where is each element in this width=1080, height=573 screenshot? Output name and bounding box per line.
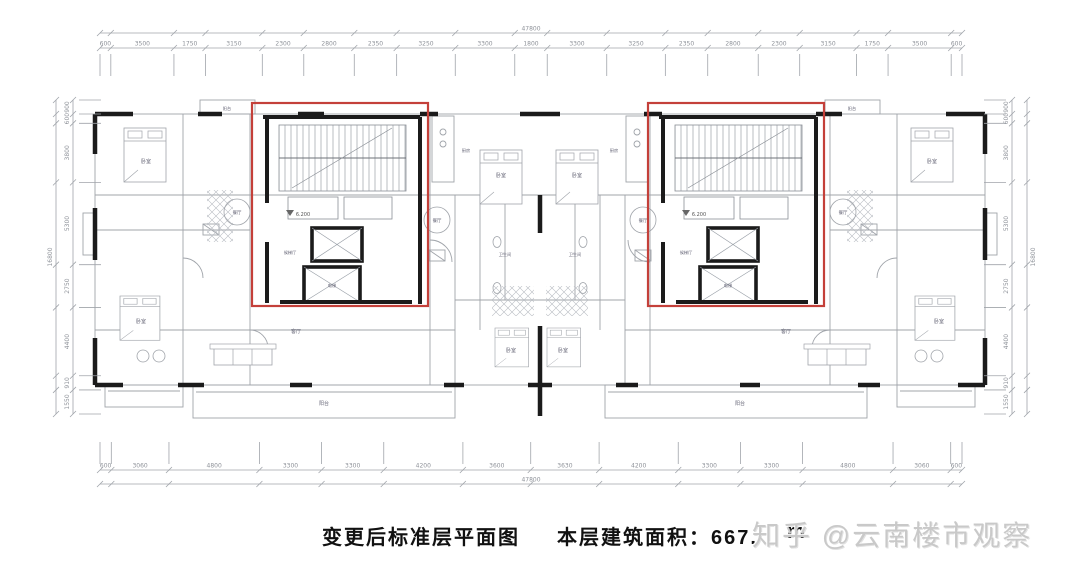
dim-label: 910	[1003, 377, 1010, 389]
dim-label: 3300	[569, 41, 584, 48]
room-label-bedroom: 卧室	[927, 158, 937, 165]
room-label-balcony: 阳台	[848, 105, 856, 112]
dimension-chain-right: 9006003800530027504400910155016800	[984, 97, 1037, 417]
dim-label: 600	[951, 463, 963, 470]
dimension-chain-top: 6003500175031502300280023503250330018003…	[97, 26, 965, 77]
dim-label: 3630	[557, 463, 572, 470]
dim-label: 2750	[1003, 278, 1010, 293]
room-label-bedroom: 卧室	[506, 347, 516, 354]
dim-label: 600	[1003, 113, 1010, 125]
room-label-dining: 餐厅	[433, 217, 442, 224]
dim-label: 3500	[135, 41, 150, 48]
room-label-dining: 餐厅	[839, 209, 848, 216]
dim-label: 900	[64, 101, 71, 113]
dim-label: 1550	[64, 394, 71, 409]
dim-label: 2750	[64, 278, 71, 293]
dim-label: 3300	[345, 463, 360, 470]
room-label-living: 客厅	[781, 328, 791, 335]
dim-label: 3060	[914, 463, 929, 470]
dim-label: 1750	[865, 41, 880, 48]
toilet-icon	[493, 237, 501, 248]
dim-label: 2800	[321, 41, 336, 48]
room-label-kitchen: 厨房	[462, 147, 470, 154]
toilet-icon	[579, 237, 587, 248]
dim-label: 4400	[1003, 334, 1010, 349]
dim-label: 4200	[631, 463, 646, 470]
dim-label: 3600	[489, 463, 504, 470]
dim-label: 2300	[771, 41, 786, 48]
room-label-bath: 卫生间	[569, 251, 582, 258]
dim-label: 2800	[725, 41, 740, 48]
dim-label: 4200	[416, 463, 431, 470]
room-label-bedroom: 卧室	[934, 318, 944, 325]
room-label-dining: 餐厅	[639, 217, 648, 224]
dim-label: 3150	[820, 41, 835, 48]
dim-label: 3500	[912, 41, 927, 48]
room-label-balcony: 阳台	[735, 400, 745, 407]
dim-label: 1750	[182, 41, 197, 48]
dim-label: 600	[64, 113, 71, 125]
dim-total-label: 16800	[1030, 247, 1037, 266]
room-label-bedroom: 卧室	[496, 172, 506, 179]
dim-label: 600	[100, 463, 112, 470]
dim-total-label: 16800	[47, 247, 54, 266]
dim-label: 910	[64, 377, 71, 389]
watermark: 知乎 @云南楼市观察	[752, 514, 1032, 554]
dim-label: 5300	[1003, 216, 1010, 231]
room-label-living: 客厅	[291, 328, 301, 335]
dim-label: 600	[951, 41, 963, 48]
room-label-kitchen: 厨房	[610, 147, 618, 154]
dim-label: 1550	[1003, 394, 1010, 409]
sink-icon	[137, 350, 149, 362]
dim-label: 3300	[702, 463, 717, 470]
dim-label: 3250	[628, 41, 643, 48]
dim-label: 600	[100, 41, 112, 48]
sink-icon	[915, 350, 927, 362]
dim-label: 4800	[207, 463, 222, 470]
dim-label: 3250	[418, 41, 433, 48]
room-label-balcony: 阳台	[319, 400, 329, 407]
dim-total-label: 47800	[521, 26, 540, 33]
dim-label: 3300	[283, 463, 298, 470]
dim-label: 3060	[132, 463, 147, 470]
dim-label: 4800	[840, 463, 855, 470]
dim-label: 1800	[523, 41, 538, 48]
room-label-dining: 餐厅	[233, 209, 242, 216]
sink-icon	[931, 350, 943, 362]
dimension-chain-bottom: 6003060480033003300420036003630420033003…	[97, 442, 965, 487]
dim-label: 2350	[368, 41, 383, 48]
dim-label: 5300	[64, 216, 71, 231]
dim-label: 2350	[679, 41, 694, 48]
wall-segments	[95, 114, 985, 416]
room-label-bedroom: 卧室	[141, 158, 151, 165]
dim-label: 3150	[226, 41, 241, 48]
dim-label: 900	[1003, 101, 1010, 113]
floor-plan-page: 6.200 候梯厅 电梯	[0, 0, 1080, 573]
floor-plan-drawing: 6.200 候梯厅 电梯	[0, 0, 1080, 510]
caption-area-text: 本层建筑面积：667.	[557, 521, 758, 550]
room-label-bedroom: 卧室	[572, 172, 582, 179]
dim-label: 3800	[1003, 145, 1010, 160]
room-label-bath: 卫生间	[499, 251, 512, 258]
dim-label: 3300	[764, 463, 779, 470]
dim-label: 2300	[275, 41, 290, 48]
sink-icon	[153, 350, 165, 362]
room-label-balcony: 阳台	[223, 105, 231, 112]
caption-plan-title: 变更后标准层平面图	[322, 521, 520, 550]
dim-total-label: 47800	[521, 477, 540, 484]
dim-label: 3800	[64, 145, 71, 160]
dim-label: 4400	[64, 334, 71, 349]
room-label-bedroom: 卧室	[558, 347, 568, 354]
dim-label: 3300	[477, 41, 492, 48]
room-label-bedroom: 卧室	[136, 318, 146, 325]
